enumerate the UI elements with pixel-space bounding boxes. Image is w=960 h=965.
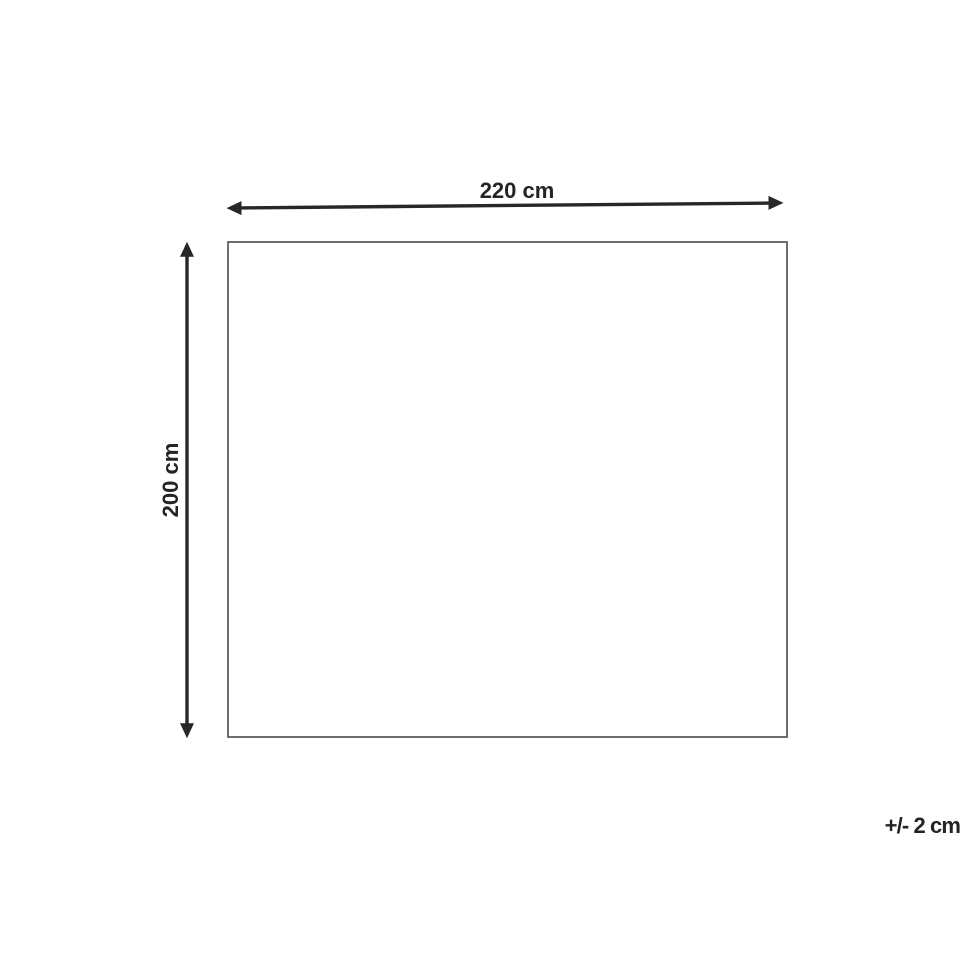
svg-text:220 cm: 220 cm <box>480 178 555 203</box>
svg-text:200 cm: 200 cm <box>158 443 183 518</box>
svg-text:+/- 2 cm: +/- 2 cm <box>885 813 960 838</box>
